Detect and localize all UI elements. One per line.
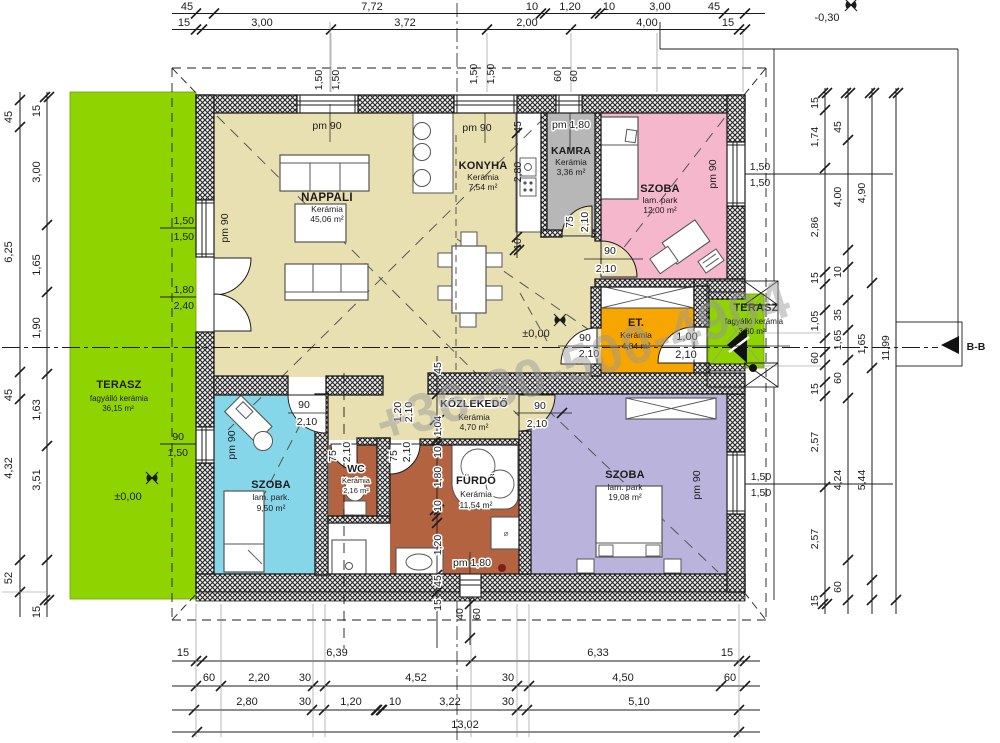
svg-text:4,52: 4,52 [405,672,426,684]
svg-text:7,72: 7,72 [361,1,382,13]
svg-text:1,74: 1,74 [809,127,821,148]
svg-text:pm 1,80: pm 1,80 [552,119,590,131]
svg-text:4,50: 4,50 [612,672,633,684]
svg-text:45: 45 [181,1,193,13]
svg-text:90: 90 [172,431,184,443]
svg-text:2,10: 2,10 [297,416,318,428]
svg-text:15: 15 [722,17,734,29]
svg-text:⌀: ⌀ [504,529,509,538]
svg-text:1,50: 1,50 [750,161,771,173]
svg-text:10: 10 [832,266,844,278]
svg-text:9,50 m²: 9,50 m² [257,503,286,513]
svg-text:1,50: 1,50 [174,231,195,243]
svg-text:2,10: 2,10 [596,263,617,275]
svg-text:pm 90: pm 90 [312,120,341,132]
svg-text:pm 90: pm 90 [226,430,238,459]
svg-text:Kerámia: Kerámia [342,476,371,485]
svg-text:6,25: 6,25 [3,241,15,262]
svg-text:4,32: 4,32 [3,457,15,478]
svg-text:Kerámia: Kerámia [311,204,343,214]
svg-text:1,20: 1,20 [432,535,444,556]
svg-text:5,44: 5,44 [856,470,868,491]
svg-text:2,80: 2,80 [236,696,257,708]
svg-text:2,57: 2,57 [809,529,821,550]
svg-text:NAPPALI: NAPPALI [301,192,353,204]
svg-text:SZOBA: SZOBA [605,469,645,481]
svg-text:5,10: 5,10 [628,696,649,708]
svg-text:1,50: 1,50 [168,447,189,459]
svg-text:2,80: 2,80 [512,162,524,183]
svg-text:6,33: 6,33 [587,647,608,659]
svg-text:SZOBA: SZOBA [640,183,680,195]
svg-text:3,00: 3,00 [251,17,272,29]
svg-text:10: 10 [526,1,538,13]
svg-text:75: 75 [327,450,339,462]
svg-text:lam. park: lam. park [608,482,644,492]
svg-text:45: 45 [432,575,444,587]
svg-text:45: 45 [432,362,444,374]
svg-text:15: 15 [809,595,821,607]
svg-text:1,50: 1,50 [751,471,772,483]
svg-text:2,10: 2,10 [579,212,591,233]
svg-text:45: 45 [3,389,15,401]
svg-text:lam. park: lam. park [643,195,679,205]
svg-text:10: 10 [512,238,524,250]
svg-text:3,22: 3,22 [439,696,460,708]
svg-text:KONYHA: KONYHA [459,160,508,172]
svg-text:10: 10 [432,446,444,458]
svg-text:15: 15 [809,272,821,284]
svg-text:60: 60 [832,372,844,384]
svg-text:4,00: 4,00 [636,17,657,29]
svg-text:15: 15 [31,606,43,618]
svg-text:pm 90: pm 90 [219,213,231,242]
svg-text:45: 45 [708,1,720,13]
svg-text:30: 30 [502,696,514,708]
svg-text:10: 10 [432,500,444,512]
svg-text:60: 60 [203,672,215,684]
svg-text:Kerámia: Kerámia [555,157,587,167]
svg-text:±0,00: ±0,00 [114,491,141,503]
svg-text:2,00: 2,00 [516,17,537,29]
svg-text:2,86: 2,86 [809,217,821,238]
svg-text:11,54 m²: 11,54 m² [460,500,493,510]
svg-text:60: 60 [568,70,580,82]
svg-text:FÜRDŐ: FÜRDŐ [456,474,496,487]
svg-text:60: 60 [471,608,483,620]
svg-text:-0,30: -0,30 [814,12,839,24]
svg-text:3,72: 3,72 [394,17,415,29]
svg-text:60: 60 [832,581,844,593]
svg-text:90: 90 [298,399,310,411]
svg-text:pm 90: pm 90 [462,122,491,134]
svg-text:1,50: 1,50 [174,215,195,227]
svg-text:15: 15 [31,105,43,117]
svg-text:2,20: 2,20 [248,672,269,684]
svg-text:30: 30 [299,672,311,684]
svg-text:15: 15 [432,599,444,611]
svg-text:1,50: 1,50 [330,70,342,91]
svg-text:12,00 m²: 12,00 m² [643,205,677,215]
svg-text:KAMRA: KAMRA [551,145,591,157]
svg-text:75: 75 [564,216,576,228]
svg-text:1,05: 1,05 [809,311,821,332]
svg-text:40: 40 [454,608,466,620]
svg-text:1,50: 1,50 [485,64,497,85]
svg-text:6,39: 6,39 [326,647,347,659]
svg-text:SZOBA: SZOBA [251,479,291,491]
svg-text:Kerámia: Kerámia [460,489,492,499]
svg-text:19,08 m²: 19,08 m² [608,492,642,502]
svg-text:60: 60 [724,672,736,684]
svg-text:1,50: 1,50 [750,177,771,189]
svg-text:10: 10 [603,1,615,13]
svg-text:4,90: 4,90 [856,183,868,204]
svg-text:fagyálló kerámia: fagyálló kerámia [90,394,149,403]
svg-text:90: 90 [604,245,616,257]
svg-text:2,57: 2,57 [809,432,821,453]
svg-text:4,24: 4,24 [832,470,844,491]
svg-text:lam. park.: lam. park. [252,492,289,502]
svg-text:15: 15 [809,97,821,109]
svg-text:15: 15 [177,647,189,659]
svg-text:60: 60 [552,70,564,82]
svg-text:1,63: 1,63 [31,399,43,420]
svg-text:30: 30 [502,672,514,684]
svg-text:1,50: 1,50 [313,70,325,91]
svg-text:1,20: 1,20 [559,1,580,13]
svg-text:1,80: 1,80 [432,467,444,488]
svg-text:11,99: 11,99 [880,335,892,361]
svg-text:pm 90: pm 90 [707,159,719,188]
svg-text:3,00: 3,00 [649,1,670,13]
svg-text:±0,00: ±0,00 [522,328,549,340]
svg-text:1,20: 1,20 [340,696,361,708]
svg-text:35: 35 [832,309,844,321]
svg-text:2,10: 2,10 [341,442,353,463]
svg-text:2,40: 2,40 [174,300,195,312]
svg-text:1,90: 1,90 [31,317,43,338]
svg-text:2,16 m²: 2,16 m² [343,486,369,495]
svg-text:52: 52 [3,572,15,584]
svg-text:Kerámia: Kerámia [467,172,499,182]
svg-text:2,10: 2,10 [527,418,548,430]
svg-text:3,51: 3,51 [31,469,43,490]
svg-text:15: 15 [809,383,821,395]
svg-text:13,02: 13,02 [451,719,479,731]
svg-text:pm 1,80: pm 1,80 [453,557,491,569]
svg-text:45,06 m²: 45,06 m² [310,214,344,224]
svg-text:45: 45 [512,121,524,133]
svg-text:60: 60 [809,352,821,364]
svg-text:30: 30 [299,696,311,708]
svg-text:3,00: 3,00 [31,161,43,182]
svg-text:45: 45 [3,111,15,123]
svg-text:1,50: 1,50 [468,64,480,85]
svg-text:15: 15 [721,647,733,659]
svg-text:1,80: 1,80 [174,284,195,296]
svg-text:WC: WC [347,463,365,475]
svg-text:1,65: 1,65 [832,330,844,351]
svg-text:pm 90: pm 90 [691,470,703,499]
svg-text:7,54 m²: 7,54 m² [469,182,498,192]
svg-text:TERASZ: TERASZ [96,379,141,391]
svg-text:15: 15 [178,17,190,29]
svg-text:10: 10 [389,696,401,708]
svg-text:1,50: 1,50 [751,487,772,499]
svg-text:B-B: B-B [967,341,986,353]
svg-text:1,65: 1,65 [31,254,43,275]
svg-text:1,65: 1,65 [856,334,868,355]
svg-text:45: 45 [832,121,844,133]
svg-text:36,15 m²: 36,15 m² [102,404,134,413]
svg-text:4,00: 4,00 [832,187,844,208]
svg-text:3,36 m²: 3,36 m² [557,167,586,177]
